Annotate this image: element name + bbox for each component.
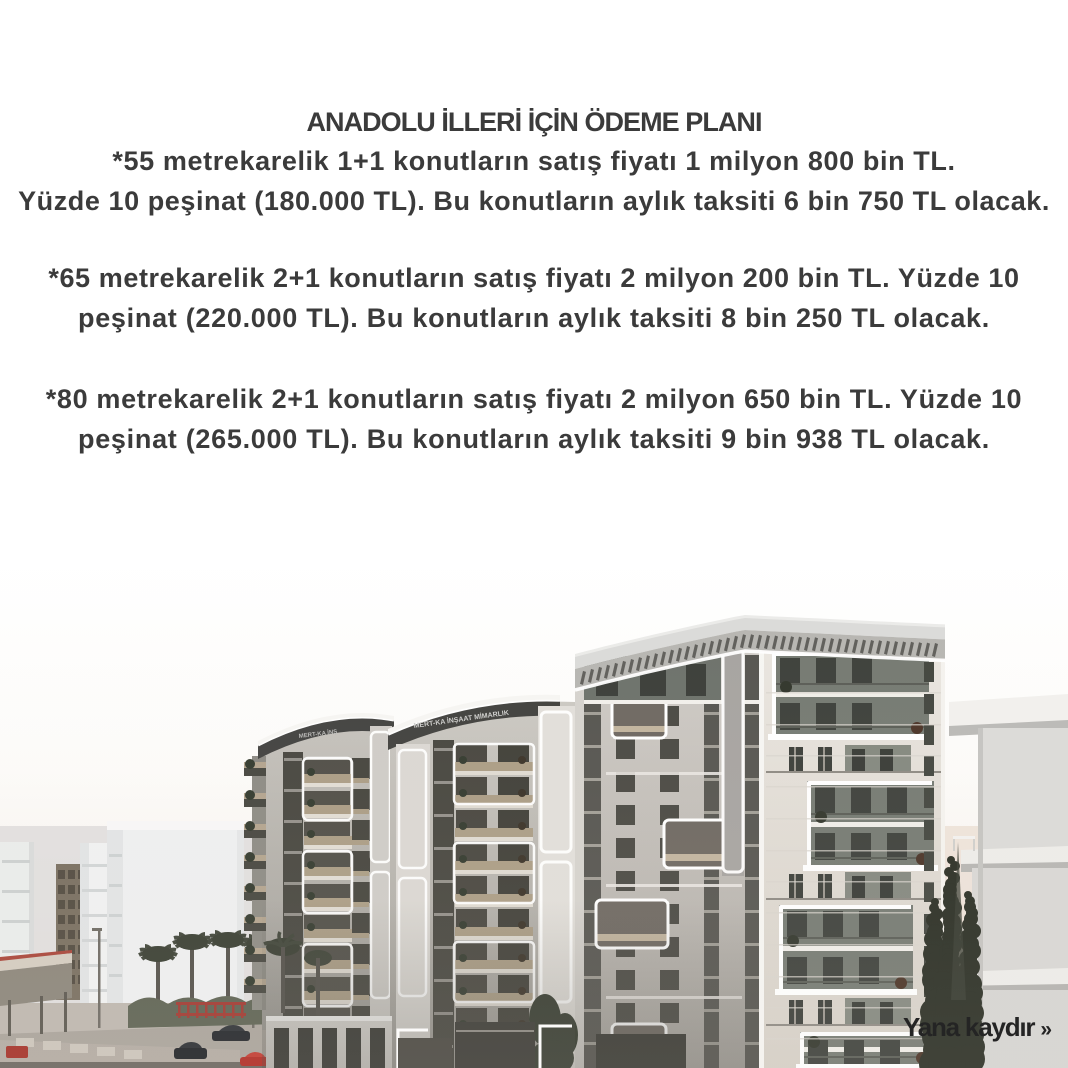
svg-text:Yana kaydır »: Yana kaydır » [903, 1012, 1051, 1042]
